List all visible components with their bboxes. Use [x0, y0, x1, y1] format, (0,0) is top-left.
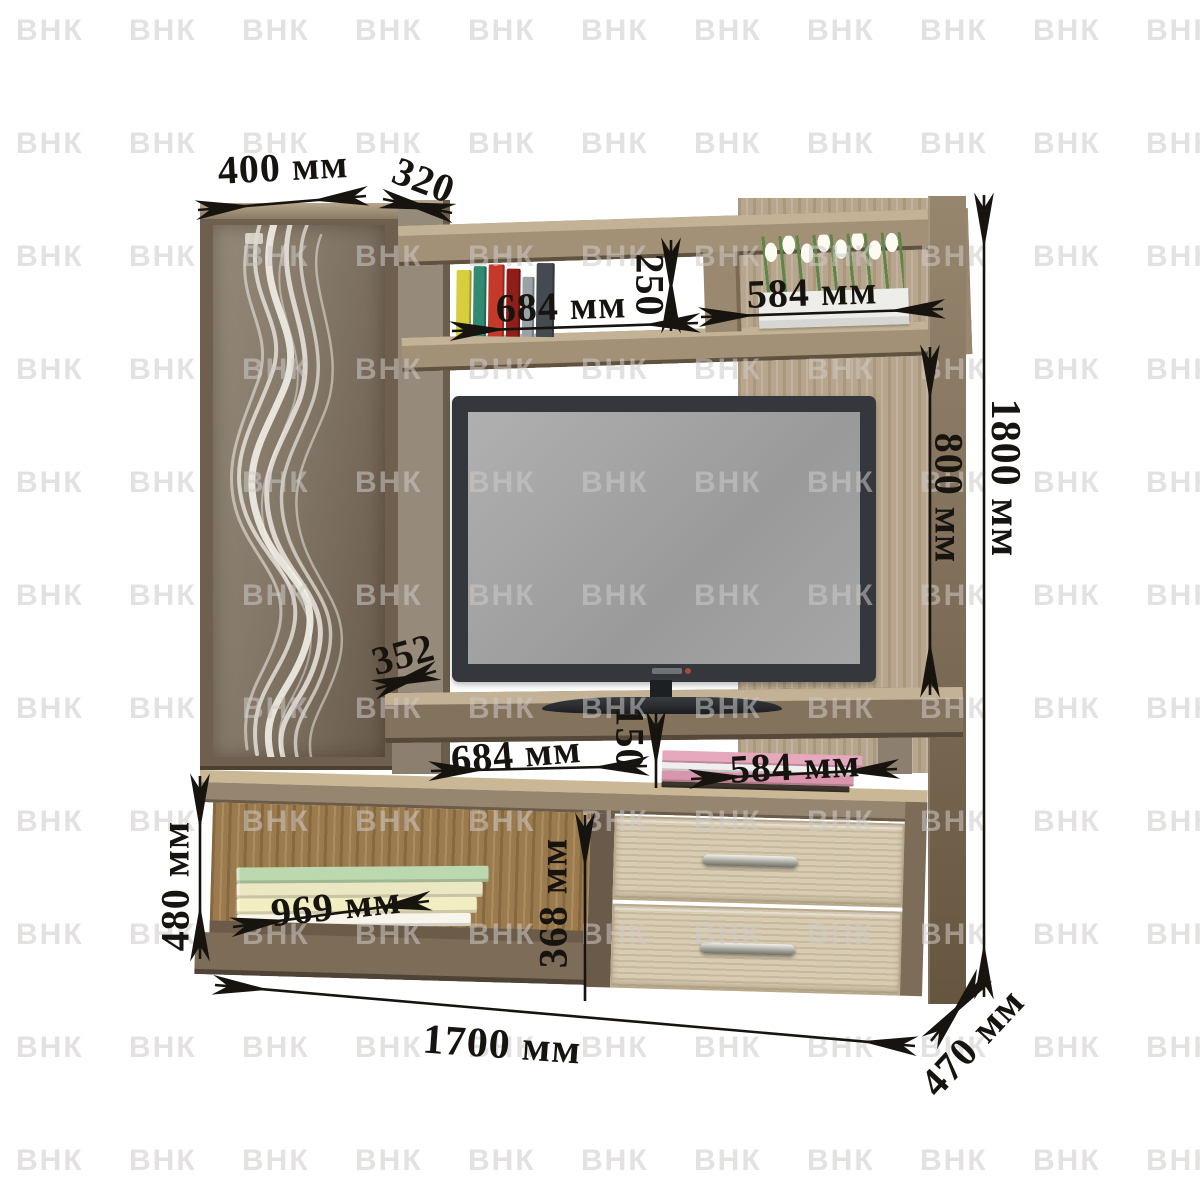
tv-shelf-right-support: [878, 736, 912, 774]
dim-base-inner-height: 368 мм: [530, 838, 577, 969]
watermark-text: ВНК: [129, 692, 197, 726]
watermark-text: ВНК: [1146, 1144, 1200, 1178]
cabinet-door-handle: [245, 233, 263, 244]
dim-tv-shelf-gap-height: 150: [607, 707, 654, 770]
watermark-text: ВНК: [129, 1031, 197, 1065]
watermark-text: ВНК: [1033, 353, 1101, 387]
watermark-text: ВНК: [468, 14, 536, 48]
watermark-text: ВНК: [694, 1031, 762, 1065]
watermark-text: ВНК: [242, 14, 310, 48]
niche-divider: [703, 251, 741, 332]
watermark-text: ВНК: [581, 14, 649, 48]
watermark-text: ВНК: [16, 918, 84, 952]
watermark-text: ВНК: [581, 127, 649, 161]
watermark-text: ВНК: [129, 353, 197, 387]
watermark-text: ВНК: [1146, 466, 1200, 500]
watermark-text: ВНК: [807, 14, 875, 48]
dim-upper-niche-width: 584 мм: [746, 266, 878, 318]
watermark-text: ВНК: [16, 127, 84, 161]
dim-tv-niche-height: 800 мм: [926, 433, 973, 564]
dim-total-height: 1800 мм: [981, 399, 1029, 558]
watermark-text: ВНК: [129, 1144, 197, 1178]
watermark-text: ВНК: [16, 579, 84, 613]
tv-logo-dot: [685, 668, 691, 674]
dim-base-height: 480 мм: [152, 821, 199, 952]
dim-tv-shelf-width: 684 мм: [449, 725, 583, 783]
watermark-text: ВНК: [1033, 692, 1101, 726]
watermark-text: ВНК: [129, 579, 197, 613]
watermark-text: ВНК: [694, 127, 762, 161]
watermark-text: ВНК: [1033, 466, 1101, 500]
watermark-text: ВНК: [1146, 918, 1200, 952]
watermark-text: ВНК: [355, 1144, 423, 1178]
watermark-text: ВНК: [1033, 805, 1101, 839]
base-right-rail: [900, 802, 927, 997]
watermark-text: ВНК: [16, 1144, 84, 1178]
watermark-text: ВНК: [468, 1144, 536, 1178]
book-spine-decor: [456, 270, 472, 336]
right-side-panel: [928, 196, 966, 1004]
watermark-text: ВНК: [242, 1031, 310, 1065]
watermark-text: ВНК: [1146, 692, 1200, 726]
dim-upper-shelf-height: 250: [627, 254, 674, 317]
display-cabinet: [200, 203, 400, 770]
watermark-text: ВНК: [16, 240, 84, 274]
watermark-text: ВНК: [242, 1144, 310, 1178]
watermark-text: ВНК: [807, 1144, 875, 1178]
watermark-text: ВНК: [1033, 14, 1101, 48]
tv-stand-base: [542, 697, 782, 714]
watermark-text: ВНК: [16, 1031, 84, 1065]
watermark-text: ВНК: [1146, 14, 1200, 48]
watermark-text: ВНК: [355, 14, 423, 48]
cabinet-glass-door: [213, 225, 385, 757]
watermark-text: ВНК: [694, 14, 762, 48]
watermark-text: ВНК: [16, 692, 84, 726]
book-spine-decor: [473, 266, 487, 336]
dim-base-niche-width: 584 мм: [729, 739, 862, 793]
upper-shelf-unit: [398, 208, 972, 372]
dim-total-width: 1700 мм: [421, 1016, 583, 1075]
watermark-text: ВНК: [1033, 240, 1101, 274]
watermark-text: ВНК: [581, 1031, 649, 1065]
watermark-text: ВНК: [355, 1031, 423, 1065]
watermark-text: ВНК: [1146, 1031, 1200, 1065]
cabinet-top-surface: [200, 203, 400, 219]
watermark-text: ВНК: [129, 14, 197, 48]
furniture-dimension-diagram: ВНКВНКВНКВНКВНКВНКВНКВНКВНКВНКВНКВНКВНКВ…: [0, 0, 1200, 1185]
watermark-text: ВНК: [1146, 805, 1200, 839]
watermark-text: ВНК: [16, 805, 84, 839]
wave-pattern-decor: [213, 225, 385, 757]
watermark-text: ВНК: [16, 14, 84, 48]
watermark-text: ВНК: [581, 1144, 649, 1178]
watermark-text: ВНК: [1033, 1144, 1101, 1178]
watermark-text: ВНК: [1146, 353, 1200, 387]
watermark-text: ВНК: [920, 1144, 988, 1178]
watermark-text: ВНК: [920, 14, 988, 48]
watermark-text: ВНК: [129, 127, 197, 161]
dim-upper-shelf-width: 684 мм: [495, 280, 627, 332]
watermark-text: ВНК: [1033, 918, 1101, 952]
tv-screen: [468, 412, 860, 664]
watermark-text: ВНК: [129, 240, 197, 274]
watermark-text: ВНК: [1033, 1031, 1101, 1065]
watermark-text: ВНК: [1146, 579, 1200, 613]
dim-cabinet-width: 400 мм: [217, 140, 350, 194]
watermark-text: ВНК: [920, 127, 988, 161]
watermark-text: ВНК: [1146, 240, 1200, 274]
watermark-text: ВНК: [16, 353, 84, 387]
watermark-text: ВНК: [1033, 579, 1101, 613]
watermark-text: ВНК: [807, 1031, 875, 1065]
watermark-text: ВНК: [1033, 127, 1101, 161]
watermark-text: ВНК: [16, 466, 84, 500]
watermark-text: ВНК: [807, 127, 875, 161]
watermark-text: ВНК: [129, 466, 197, 500]
watermark-text: ВНК: [1146, 127, 1200, 161]
tv-logo: [652, 668, 682, 674]
watermark-text: ВНК: [694, 1144, 762, 1178]
tv: [452, 396, 876, 682]
watermark-text: ВНК: [468, 127, 536, 161]
